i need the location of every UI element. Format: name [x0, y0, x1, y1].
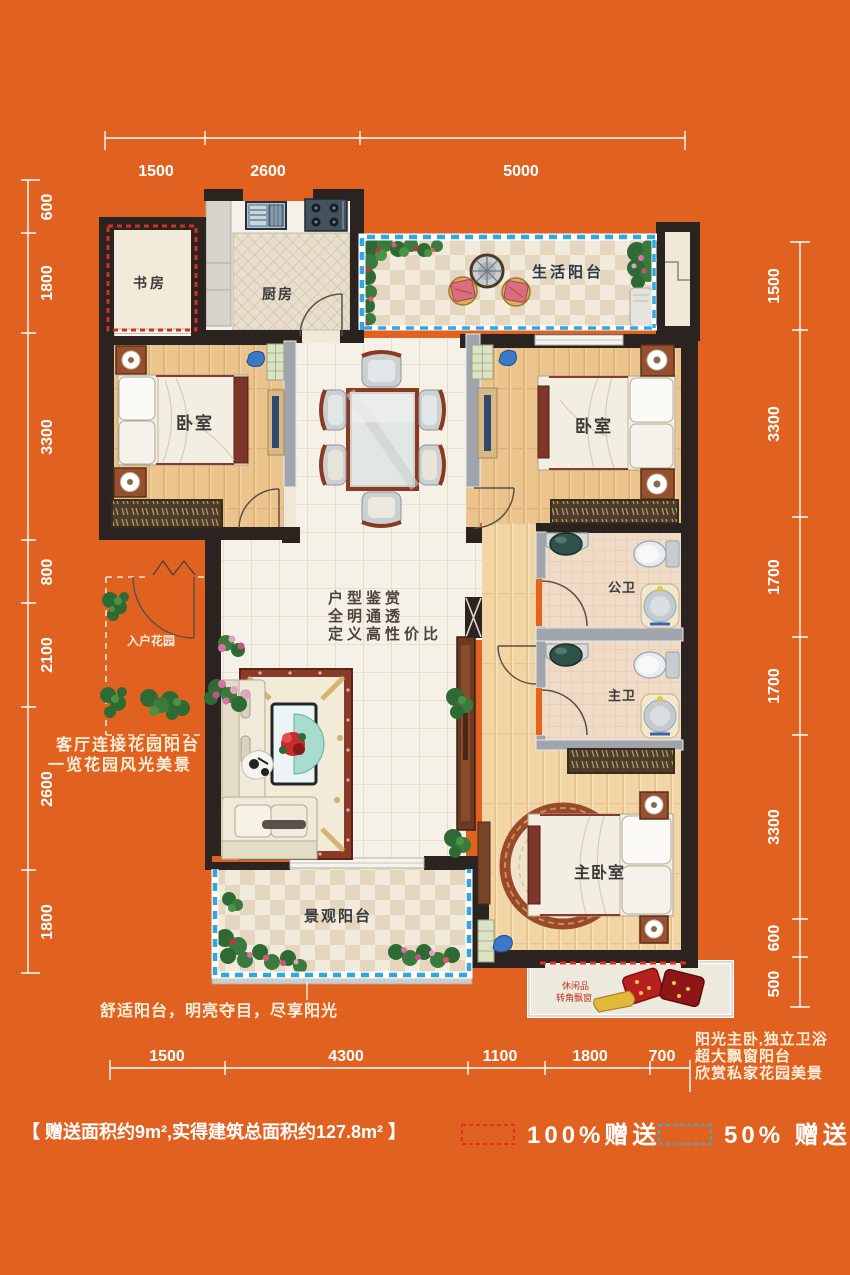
svg-text:转角飘窗: 转角飘窗 [556, 992, 592, 1003]
svg-text:4300: 4300 [328, 1048, 364, 1065]
svg-text:超大飘窗阳台: 超大飘窗阳台 [694, 1047, 791, 1065]
svg-text:公卫: 公卫 [608, 580, 636, 595]
svg-text:卧室: 卧室 [575, 416, 613, 436]
svg-text:入户花园: 入户花园 [127, 633, 175, 648]
svg-text:3300: 3300 [766, 809, 783, 845]
svg-text:700: 700 [649, 1048, 676, 1065]
svg-text:主卧室: 主卧室 [574, 863, 625, 882]
svg-text:生活阳台: 生活阳台 [532, 263, 604, 281]
svg-text:3300: 3300 [39, 419, 56, 455]
svg-text:卧室: 卧室 [176, 413, 214, 433]
svg-text:50% 赠送: 50% 赠送 [724, 1121, 850, 1149]
svg-text:1800: 1800 [39, 904, 56, 940]
svg-text:1800: 1800 [39, 265, 56, 301]
svg-text:1500: 1500 [138, 163, 174, 180]
svg-text:2600: 2600 [250, 163, 286, 180]
svg-text:一览花园风光美景: 一览花园风光美景 [48, 755, 192, 774]
svg-text:全明通透: 全明通透 [327, 607, 404, 625]
svg-text:1700: 1700 [766, 559, 783, 595]
svg-text:舒适阳台，明亮夺目，尽享阳光: 舒适阳台，明亮夺目，尽享阳光 [100, 1001, 338, 1020]
svg-text:1500: 1500 [149, 1048, 185, 1065]
svg-text:3300: 3300 [766, 406, 783, 442]
svg-text:800: 800 [39, 559, 56, 586]
svg-text:500: 500 [766, 971, 783, 998]
svg-text:2600: 2600 [39, 771, 56, 807]
svg-text:1800: 1800 [572, 1048, 608, 1065]
svg-text:定义高性价比: 定义高性价比 [328, 625, 442, 643]
svg-text:欣赏私家花园美景: 欣赏私家花园美景 [695, 1064, 823, 1082]
svg-text:1500: 1500 [766, 268, 783, 304]
svg-text:600: 600 [766, 925, 783, 952]
svg-text:100%赠送: 100%赠送 [527, 1121, 660, 1149]
svg-text:主卫: 主卫 [608, 688, 636, 703]
svg-text:景观阳台: 景观阳台 [304, 907, 372, 925]
svg-text:【 赠送面积约9m²,实得建筑总面积约127.8m² 】: 【 赠送面积约9m²,实得建筑总面积约127.8m² 】 [22, 1121, 406, 1142]
svg-text:2100: 2100 [39, 637, 56, 673]
svg-text:书房: 书房 [133, 275, 167, 291]
svg-text:户型鉴赏: 户型鉴赏 [328, 589, 404, 607]
svg-text:1100: 1100 [483, 1048, 518, 1065]
svg-text:客厅连接花园阳台: 客厅连接花园阳台 [56, 735, 200, 754]
svg-text:阳光主卧,独立卫浴: 阳光主卧,独立卫浴 [695, 1030, 828, 1048]
svg-text:休闲品: 休闲品 [562, 980, 589, 991]
svg-text:600: 600 [39, 194, 56, 221]
svg-text:1700: 1700 [766, 668, 783, 704]
svg-text:厨房: 厨房 [262, 286, 294, 302]
svg-text:5000: 5000 [503, 163, 539, 180]
